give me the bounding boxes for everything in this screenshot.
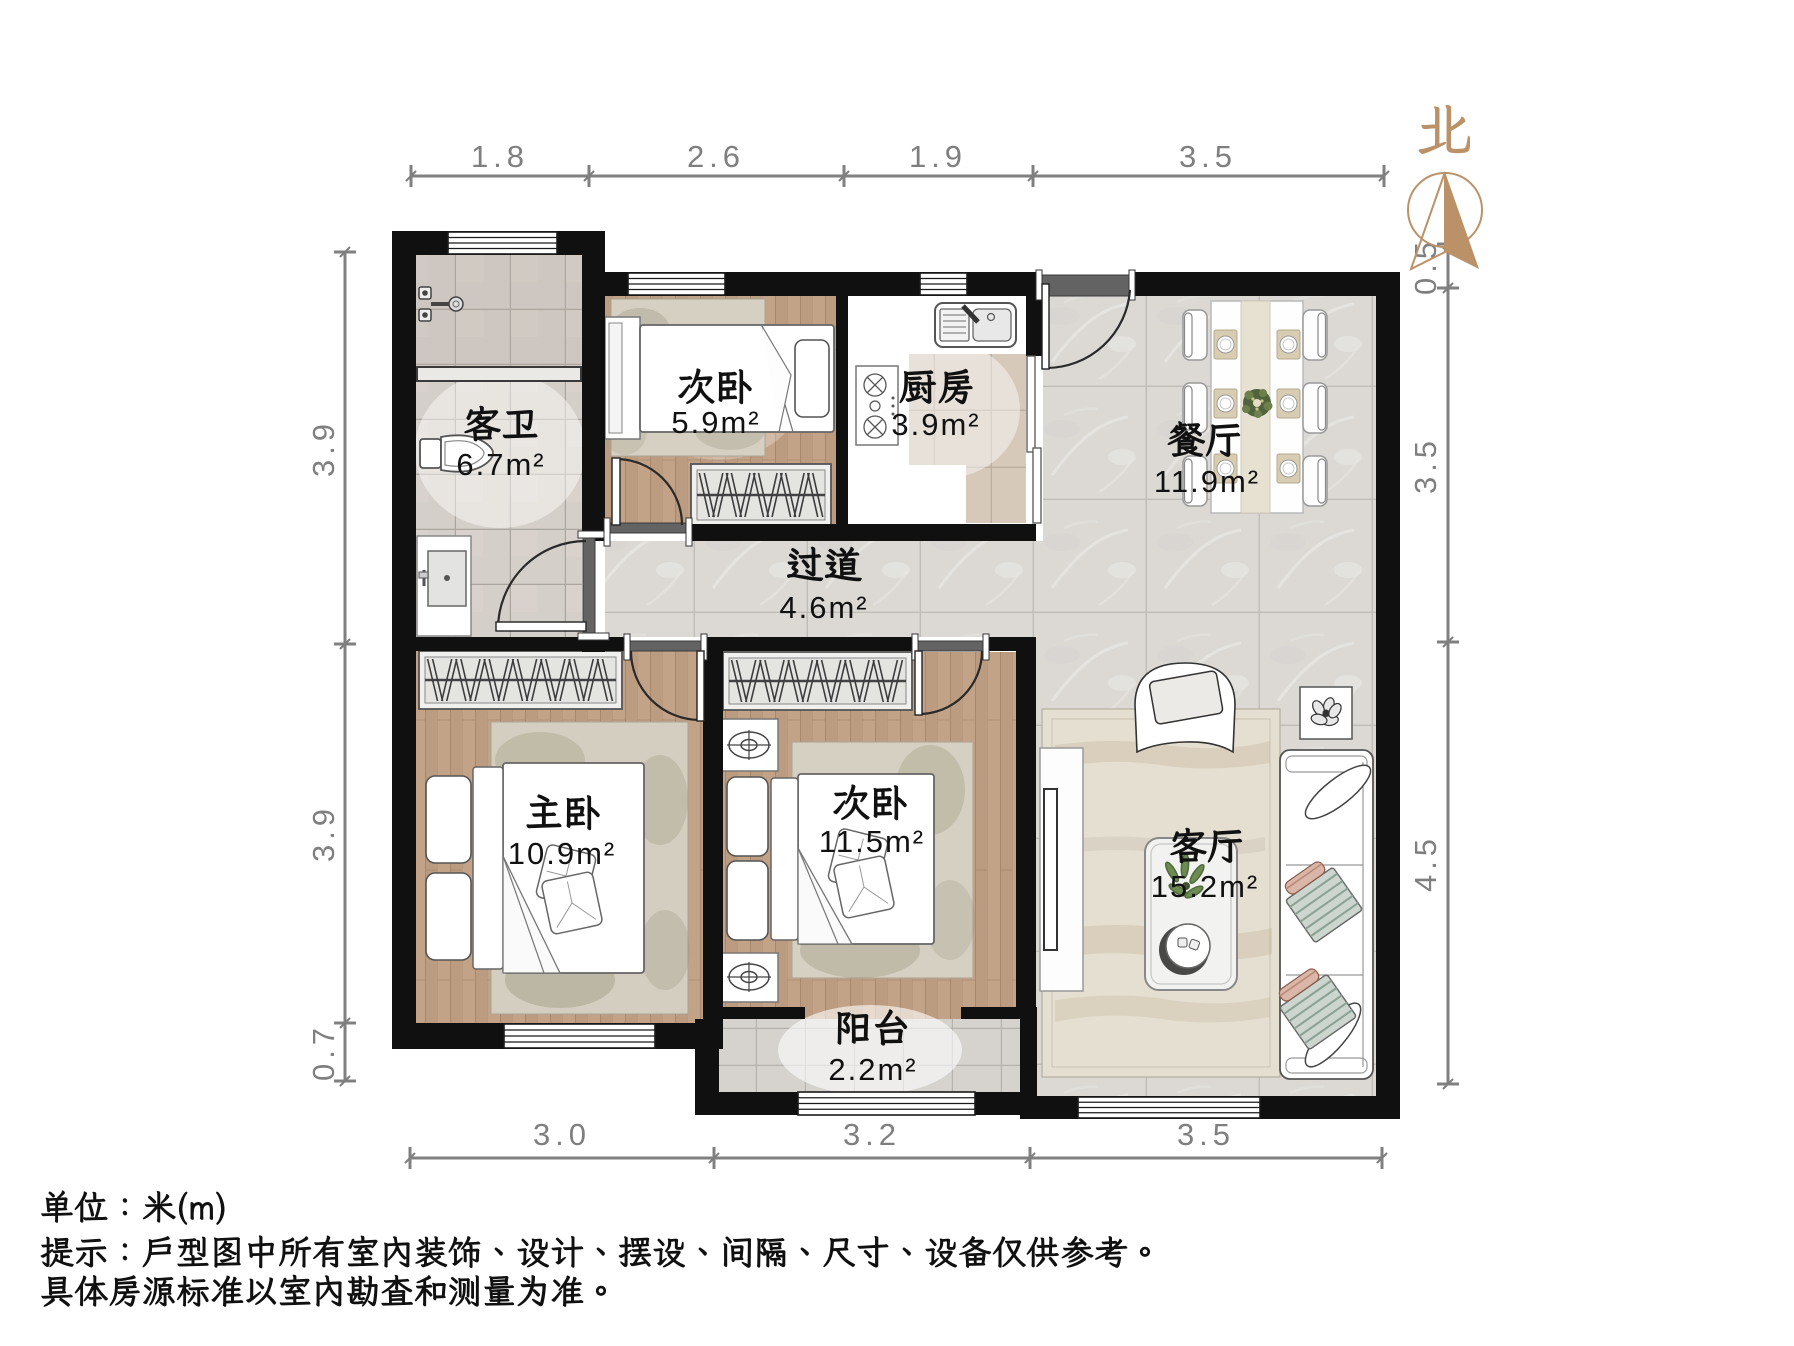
svg-text:4.5: 4.5 bbox=[1408, 834, 1443, 892]
svg-text:3.9m²: 3.9m² bbox=[891, 407, 980, 442]
svg-text:3.9: 3.9 bbox=[306, 419, 341, 477]
svg-text:0.7: 0.7 bbox=[306, 1023, 341, 1081]
svg-text:11.5m²: 11.5m² bbox=[819, 824, 925, 859]
svg-text:10.9m²: 10.9m² bbox=[508, 836, 616, 871]
svg-text:6.7m²: 6.7m² bbox=[456, 447, 545, 482]
svg-text:2.2m²: 2.2m² bbox=[828, 1052, 917, 1087]
svg-text:1.8: 1.8 bbox=[471, 139, 529, 174]
svg-text:3.5: 3.5 bbox=[1179, 139, 1237, 174]
svg-text:15.2m²: 15.2m² bbox=[1151, 869, 1259, 904]
svg-text:3.9: 3.9 bbox=[306, 804, 341, 862]
svg-text:11.9m²: 11.9m² bbox=[1154, 464, 1260, 499]
svg-text:2.6: 2.6 bbox=[687, 139, 745, 174]
svg-text:3.5: 3.5 bbox=[1408, 436, 1443, 494]
svg-text:3.0: 3.0 bbox=[533, 1117, 591, 1152]
svg-text:5.9m²: 5.9m² bbox=[671, 405, 760, 440]
svg-text:3.2: 3.2 bbox=[843, 1117, 901, 1152]
svg-text:3.5: 3.5 bbox=[1177, 1117, 1235, 1152]
svg-text:1.9: 1.9 bbox=[909, 139, 967, 174]
svg-text:4.6m²: 4.6m² bbox=[779, 590, 868, 625]
